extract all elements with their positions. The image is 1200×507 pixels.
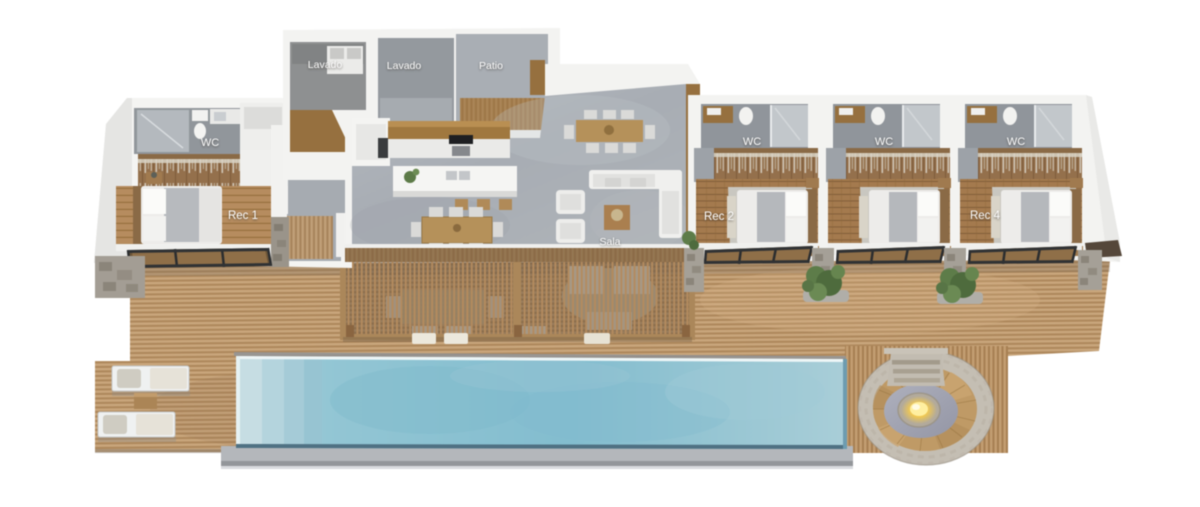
svg-text:Rec 1: Rec 1	[228, 210, 258, 222]
svg-text:Sala: Sala	[599, 236, 620, 248]
svg-text:Rec 2: Rec 2	[704, 211, 734, 223]
svg-text:WC: WC	[875, 136, 893, 148]
svg-text:Lavado: Lavado	[308, 59, 343, 71]
svg-text:Patio: Patio	[479, 60, 503, 72]
svg-text:Lavado: Lavado	[387, 60, 422, 72]
svg-text:Rec 4: Rec 4	[970, 210, 1001, 222]
svg-text:WC: WC	[743, 136, 761, 148]
svg-text:WC: WC	[1007, 136, 1025, 148]
svg-text:WC: WC	[201, 137, 219, 149]
